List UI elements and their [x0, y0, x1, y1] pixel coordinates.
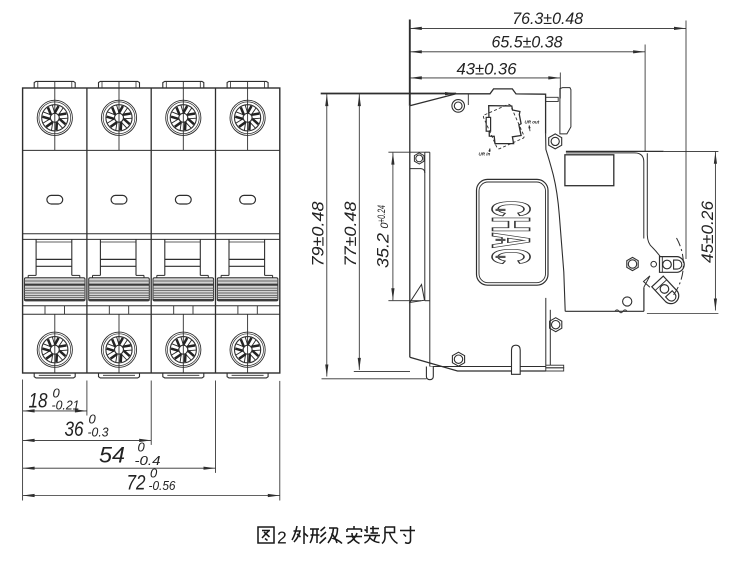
svg-text:76.3±0.48: 76.3±0.48: [512, 9, 584, 28]
svg-text:18: 18: [29, 390, 48, 413]
svg-text:-0.56: -0.56: [149, 478, 177, 493]
svg-text:54: 54: [99, 443, 125, 468]
svg-text:43±0.36: 43±0.36: [457, 59, 518, 78]
svg-text:-0.3: -0.3: [88, 424, 110, 439]
svg-text:UR out: UR out: [525, 120, 540, 125]
svg-text:77±0.48: 77±0.48: [341, 201, 360, 267]
svg-text:45±0.26: 45±0.26: [698, 200, 717, 263]
svg-text:UR in: UR in: [479, 152, 491, 157]
svg-text:79±0.48: 79±0.48: [309, 201, 328, 267]
svg-text:CHAC: CHAC: [481, 201, 541, 265]
svg-text:35.2: 35.2: [373, 232, 392, 268]
svg-text:65.5±0.38: 65.5±0.38: [492, 33, 564, 52]
svg-text:2: 2: [277, 528, 287, 548]
svg-text:36: 36: [65, 418, 84, 441]
svg-text:0: 0: [379, 222, 391, 229]
svg-text:72: 72: [127, 472, 146, 495]
svg-text:+0.24: +0.24: [376, 205, 388, 223]
svg-text:-0.21: -0.21: [52, 398, 80, 413]
